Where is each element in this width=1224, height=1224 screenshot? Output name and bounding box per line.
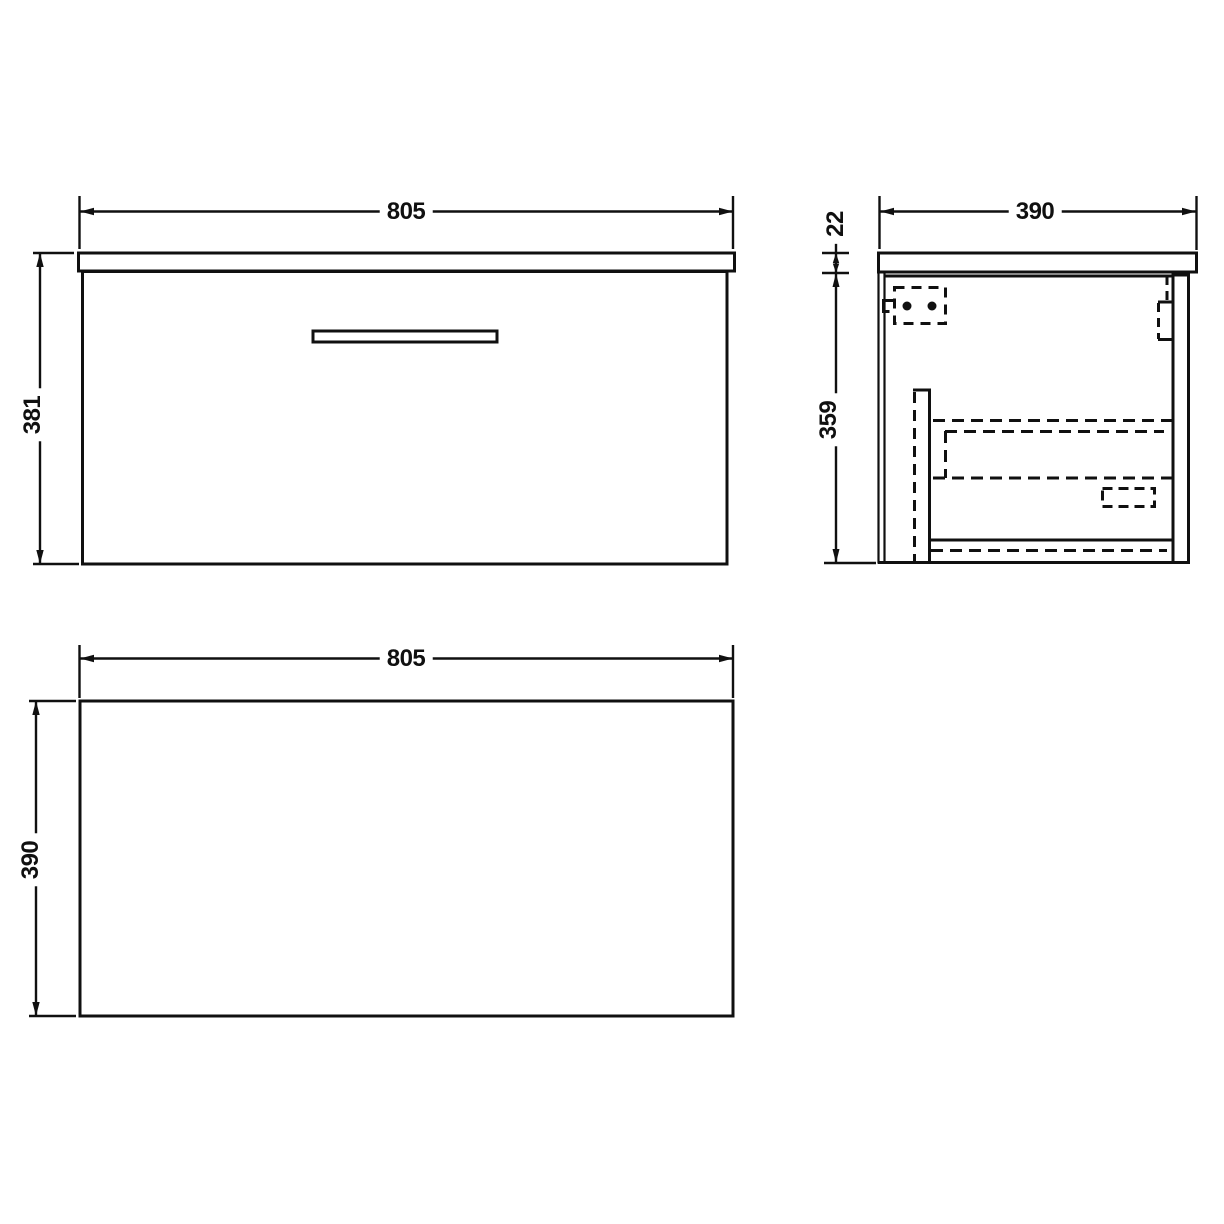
front-view xyxy=(33,196,735,564)
front-cabinet-body xyxy=(83,272,728,565)
drawer-handle xyxy=(313,331,497,342)
arrowhead-left-icon xyxy=(880,208,894,215)
drawing-linework xyxy=(0,0,1224,1224)
front-width-label: 805 xyxy=(380,198,433,226)
arrowhead-up-icon xyxy=(36,253,43,267)
arrowhead-right-icon xyxy=(1182,208,1196,215)
side-worktop-thickness-label: 22 xyxy=(822,204,850,244)
side-view xyxy=(822,196,1197,563)
side-back-panel xyxy=(1173,275,1189,563)
arrowhead-down-icon xyxy=(32,1002,39,1016)
drawer-runner-bracket xyxy=(1103,489,1155,507)
arrowhead-down-icon xyxy=(833,549,840,563)
drawer-box-hidden-lines xyxy=(931,421,1172,551)
bracket-hole-icon xyxy=(903,302,912,311)
arrowhead-up-icon xyxy=(833,273,840,287)
side-cabinet-height-label: 359 xyxy=(815,394,843,447)
hanging-rail-notch xyxy=(1158,276,1173,340)
side-depth-label: 390 xyxy=(1009,198,1062,226)
arrowhead-up-icon xyxy=(32,701,39,715)
front-worktop xyxy=(79,253,735,271)
wall-mounting-bracket xyxy=(884,288,946,324)
arrowhead-right-icon xyxy=(719,655,733,662)
arrowhead-right-icon xyxy=(719,208,733,215)
technical-drawing: 805 381 390 22 359 805 390 xyxy=(0,0,1224,1224)
plan-width-label: 805 xyxy=(380,645,433,673)
front-height-label: 381 xyxy=(19,389,47,442)
bracket-outline xyxy=(895,288,946,324)
drawer-front-panel xyxy=(913,390,931,562)
arrowhead-up-icon xyxy=(833,253,839,263)
arrowhead-down-icon xyxy=(36,550,43,564)
plan-depth-label: 390 xyxy=(17,834,45,887)
plan-view xyxy=(29,645,733,1016)
arrowhead-down-icon xyxy=(833,264,839,274)
arrowhead-left-icon xyxy=(80,208,94,215)
side-worktop xyxy=(879,253,1197,272)
plan-worktop-outline xyxy=(80,701,733,1016)
bracket-hole-icon xyxy=(928,302,937,311)
arrowhead-left-icon xyxy=(80,655,94,662)
side-front-panel xyxy=(879,272,885,563)
